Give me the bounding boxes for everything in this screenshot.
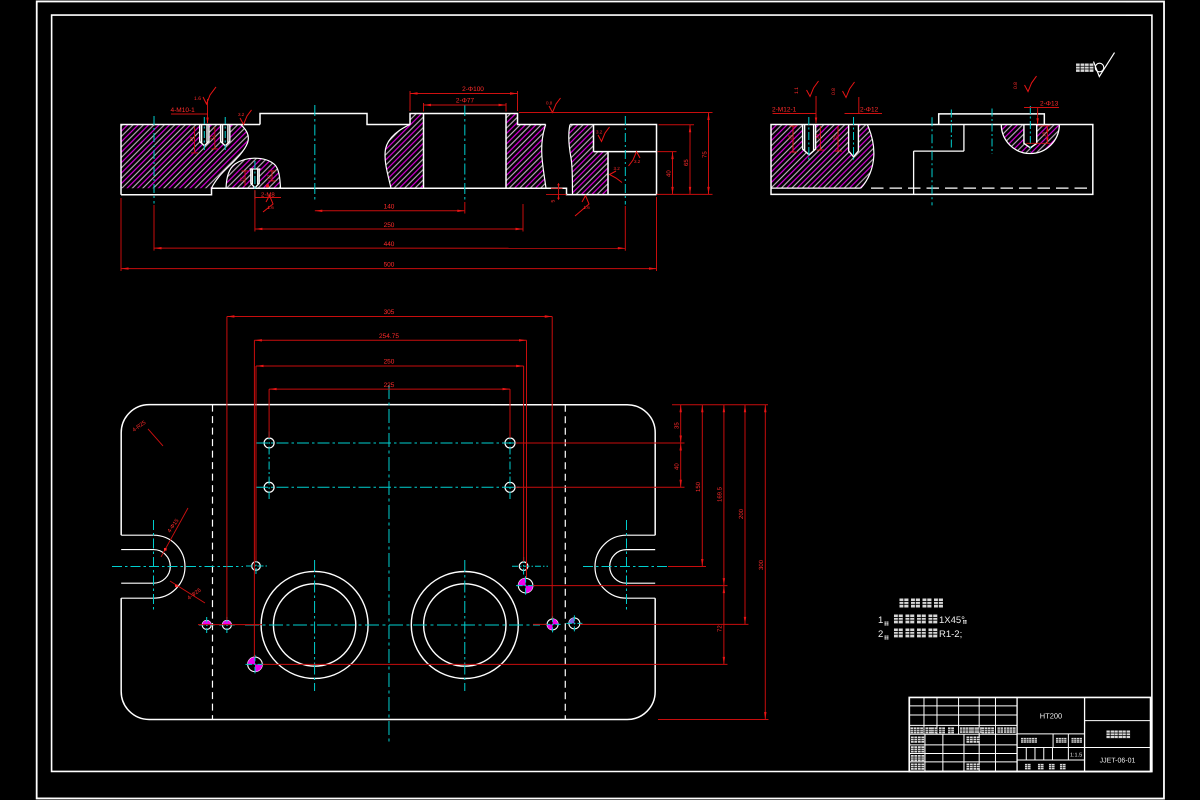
svg-text:2-M8: 2-M8 [261,191,275,198]
svg-text:254.75: 254.75 [379,333,399,340]
svg-text:200: 200 [738,508,745,519]
svg-text:1.1: 1.1 [794,87,800,94]
svg-text:40: 40 [673,463,680,470]
svg-text:15: 15 [240,176,245,182]
svg-text:R1-2;: R1-2; [939,629,962,640]
svg-text:1: 1 [878,615,883,626]
svg-text:2-M12-1: 2-M12-1 [772,107,797,114]
svg-text:25: 25 [833,135,838,141]
svg-text:JJET-06-01: JJET-06-01 [1100,757,1136,764]
svg-text:17: 17 [267,174,272,180]
svg-text:4-M10-1: 4-M10-1 [171,107,196,114]
svg-text:225: 225 [384,382,395,389]
svg-text:40: 40 [665,170,672,177]
svg-text:3.2: 3.2 [238,112,245,117]
svg-text:1.6: 1.6 [584,205,591,210]
svg-text:140: 140 [384,203,395,210]
svg-text:3.2: 3.2 [596,129,603,134]
svg-text:1.6: 1.6 [194,96,201,102]
svg-text:169.5: 169.5 [717,486,724,502]
svg-text:26: 26 [788,135,793,141]
svg-text:150: 150 [695,481,702,492]
svg-text:3.2: 3.2 [634,159,641,164]
svg-text:2-Φ77: 2-Φ77 [456,97,475,104]
svg-text:65: 65 [683,159,690,166]
svg-text:2-Φ12: 2-Φ12 [860,107,879,114]
svg-text:0.8: 0.8 [1013,82,1019,89]
svg-text:0.8: 0.8 [831,88,837,95]
svg-text:23: 23 [815,134,820,140]
svg-text:250: 250 [384,222,395,229]
svg-text:305: 305 [384,309,395,316]
svg-text:75: 75 [701,151,708,158]
svg-text:440: 440 [384,241,395,248]
svg-text:HT200: HT200 [1040,712,1063,721]
svg-text:0.8: 0.8 [546,100,553,105]
svg-text:1.6: 1.6 [268,205,275,210]
svg-text:500: 500 [384,261,395,268]
svg-text:5: 5 [551,199,557,202]
svg-text:19: 19 [189,136,194,142]
svg-text:1:1.5: 1:1.5 [1070,753,1082,759]
svg-text:2-Φ13: 2-Φ13 [1040,101,1059,108]
svg-text:3.2: 3.2 [614,166,621,171]
svg-text:18: 18 [1041,132,1046,138]
svg-text:12: 12 [209,134,214,140]
svg-text:300: 300 [758,559,765,570]
svg-text:35: 35 [673,422,680,429]
svg-text:2-Φ100: 2-Φ100 [462,86,484,93]
svg-text:2: 2 [878,629,883,640]
svg-text:72: 72 [717,625,724,632]
svg-text:1X45°: 1X45° [939,615,965,626]
svg-text:250: 250 [384,359,395,366]
